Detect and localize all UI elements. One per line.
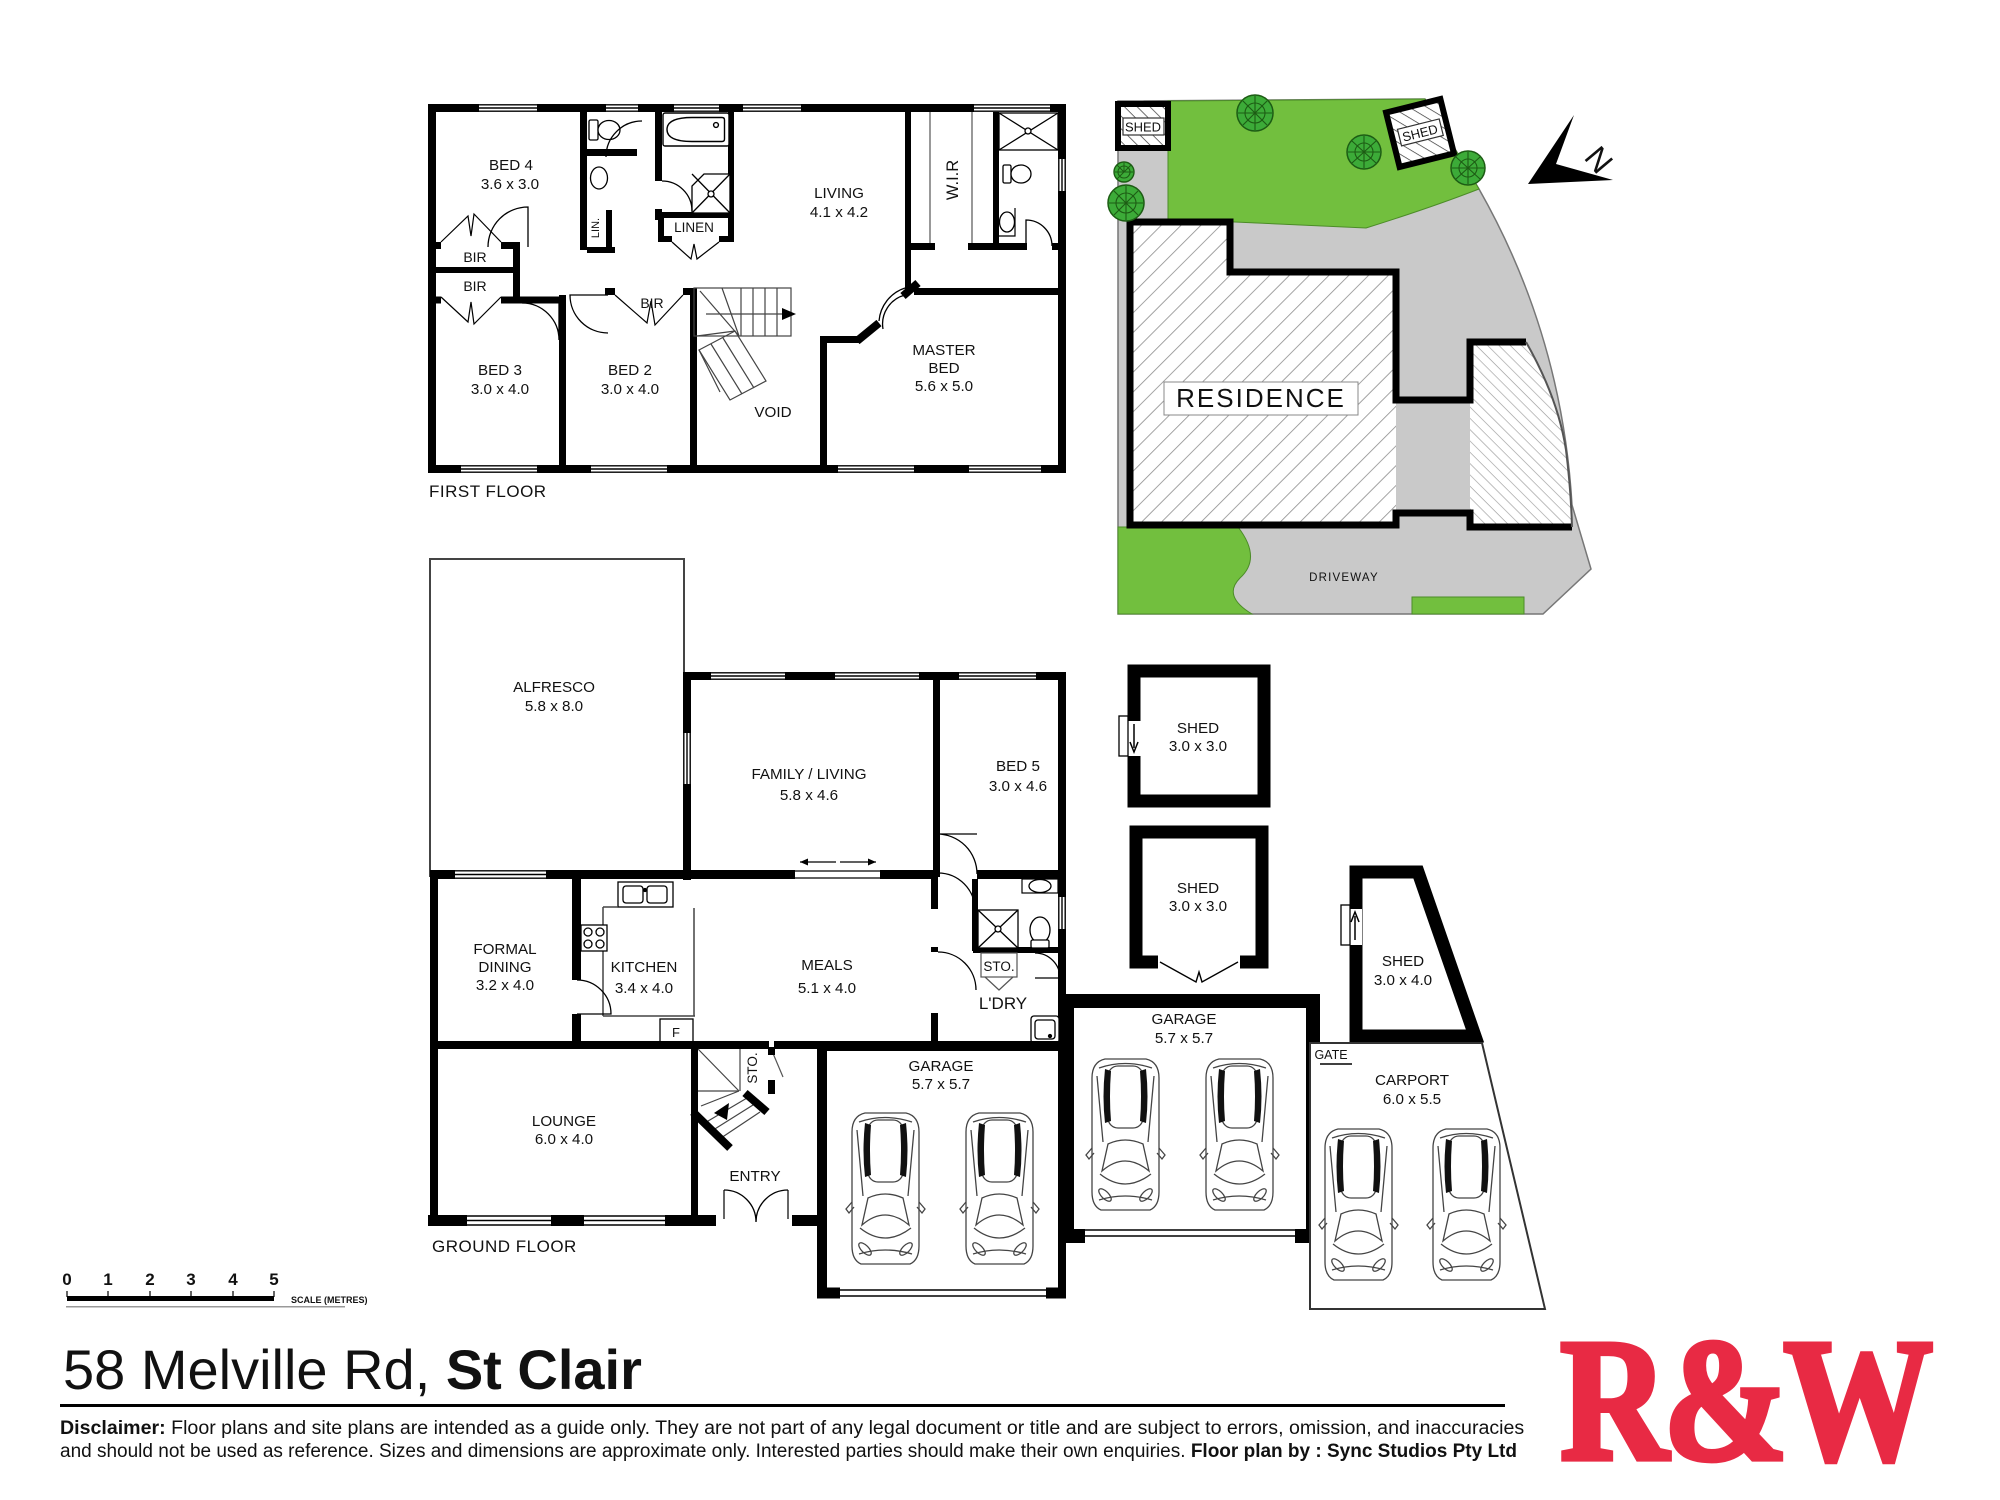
svg-text:SHED: SHED [1382, 953, 1424, 970]
svg-text:6.0 x 4.0: 6.0 x 4.0 [535, 1131, 593, 1148]
svg-text:5.7 x 5.7: 5.7 x 5.7 [1155, 1030, 1213, 1047]
svg-text:5.8 x 8.0: 5.8 x 8.0 [525, 698, 583, 715]
svg-text:VOID: VOID [754, 404, 791, 421]
svg-text:3.4 x 4.0: 3.4 x 4.0 [615, 980, 673, 997]
svg-text:MEALS: MEALS [801, 957, 853, 974]
svg-text:BED 5: BED 5 [996, 758, 1040, 775]
svg-text:2: 2 [145, 1270, 154, 1289]
svg-text:F: F [672, 1025, 680, 1040]
svg-text:3.0 x 4.0: 3.0 x 4.0 [1374, 972, 1432, 989]
svg-text:FIRST FLOOR: FIRST FLOOR [429, 482, 547, 501]
svg-text:STO.: STO. [983, 959, 1014, 974]
svg-text:GROUND FLOOR: GROUND FLOOR [432, 1237, 577, 1256]
svg-text:KITCHEN: KITCHEN [611, 959, 678, 976]
svg-text:ENTRY: ENTRY [729, 1168, 780, 1185]
svg-text:BED 4: BED 4 [489, 157, 533, 174]
svg-text:STO.: STO. [745, 1052, 760, 1083]
svg-text:SHED: SHED [1177, 880, 1219, 897]
svg-text:5: 5 [269, 1270, 278, 1289]
svg-text:and should not be used as refe: and should not be used as reference. Siz… [60, 1441, 1517, 1462]
svg-text:LIVING: LIVING [814, 185, 864, 202]
svg-text:RESIDENCE: RESIDENCE [1176, 383, 1346, 413]
svg-text:LOUNGE: LOUNGE [532, 1113, 596, 1130]
svg-text:Disclaimer: Floor plans and si: Disclaimer: Floor plans and site plans a… [60, 1417, 1524, 1439]
svg-text:58 Melville Rd, St Clair: 58 Melville Rd, St Clair [63, 1338, 642, 1401]
svg-text:BED 3: BED 3 [478, 362, 522, 379]
svg-text:0: 0 [62, 1270, 71, 1289]
svg-text:6.0 x 5.5: 6.0 x 5.5 [1383, 1091, 1441, 1108]
svg-text:4: 4 [228, 1270, 238, 1289]
svg-text:5.8 x 4.6: 5.8 x 4.6 [780, 787, 838, 804]
svg-text:GATE: GATE [1314, 1048, 1347, 1062]
svg-text:CARPORT: CARPORT [1375, 1072, 1449, 1089]
svg-text:FORMAL: FORMAL [473, 941, 536, 958]
svg-text:3.6 x 3.0: 3.6 x 3.0 [481, 176, 539, 193]
svg-text:3.0 x 3.0: 3.0 x 3.0 [1169, 738, 1227, 755]
svg-text:DINING: DINING [478, 959, 531, 976]
svg-text:4.1 x 4.2: 4.1 x 4.2 [810, 204, 868, 221]
svg-text:BIR: BIR [463, 249, 486, 265]
svg-text:3: 3 [186, 1270, 195, 1289]
svg-text:3.2 x 4.0: 3.2 x 4.0 [476, 977, 534, 994]
svg-text:BED: BED [928, 360, 959, 377]
svg-text:1: 1 [103, 1270, 112, 1289]
svg-text:BIR: BIR [463, 278, 486, 294]
svg-text:3.0 x 4.6: 3.0 x 4.6 [989, 778, 1047, 795]
svg-text:R&W: R&W [1560, 1304, 1931, 1498]
svg-text:MASTER: MASTER [912, 342, 975, 359]
svg-text:BIR: BIR [640, 295, 663, 311]
svg-text:LIN.: LIN. [590, 218, 602, 238]
svg-text:SHED: SHED [1125, 120, 1161, 135]
svg-text:L'DRY: L'DRY [979, 994, 1027, 1013]
svg-text:5.6 x 5.0: 5.6 x 5.0 [915, 378, 973, 395]
svg-text:GARAGE: GARAGE [1152, 1011, 1217, 1028]
svg-text:DRIVEWAY: DRIVEWAY [1309, 572, 1379, 584]
svg-text:SCALE (METRES): SCALE (METRES) [291, 1295, 368, 1305]
svg-text:5.1 x 4.0: 5.1 x 4.0 [798, 980, 856, 997]
svg-text:ALFRESCO: ALFRESCO [513, 679, 595, 696]
svg-text:W.I.R: W.I.R [944, 160, 962, 200]
svg-text:3.0 x 4.0: 3.0 x 4.0 [471, 381, 529, 398]
svg-text:GARAGE: GARAGE [909, 1058, 974, 1075]
svg-text:LINEN: LINEN [674, 220, 714, 235]
svg-text:SHED: SHED [1177, 720, 1219, 737]
svg-text:3.0 x 4.0: 3.0 x 4.0 [601, 381, 659, 398]
svg-text:BED 2: BED 2 [608, 362, 652, 379]
svg-text:3.0 x 3.0: 3.0 x 3.0 [1169, 898, 1227, 915]
svg-text:FAMILY / LIVING: FAMILY / LIVING [751, 766, 866, 783]
svg-text:5.7 x 5.7: 5.7 x 5.7 [912, 1076, 970, 1093]
